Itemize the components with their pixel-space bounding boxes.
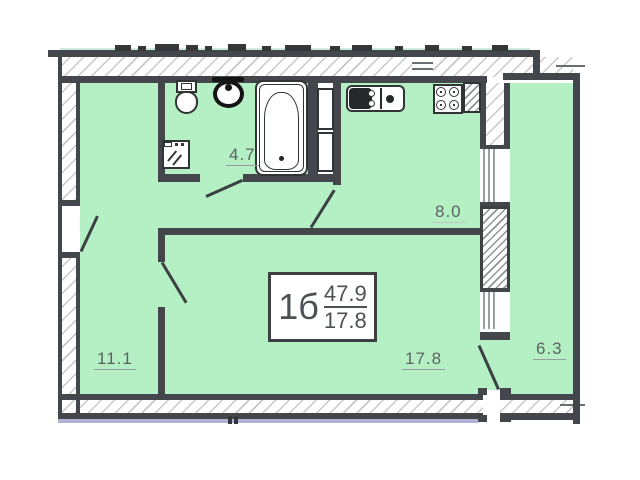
adjacent-unit-fragment	[115, 45, 131, 51]
unit-type-label: 1б	[278, 289, 319, 325]
window-glazing	[493, 149, 495, 202]
adjacent-unit-fragment	[205, 46, 212, 51]
adjacent-unit-fragment	[138, 46, 146, 51]
unit-total-area: 47.9	[324, 281, 367, 306]
living-room-area-label: 17.8	[402, 350, 445, 370]
wall-hatch-bottom-main	[62, 400, 483, 414]
wall-corridor-horizontal	[158, 228, 483, 235]
wall-hallway-living	[158, 307, 165, 394]
toilet-bowl	[175, 91, 198, 114]
wall-nub	[478, 415, 487, 422]
stove-burner-dot	[453, 91, 455, 93]
dimension-tick	[556, 65, 585, 67]
washing-machine-knob	[181, 143, 184, 146]
duct-box	[317, 88, 334, 130]
window-glazing	[493, 292, 495, 329]
wall-right-outer	[573, 73, 580, 424]
adjacent-unit-fragment	[155, 44, 179, 51]
unit-stamp: 1б 47.9 17.8	[268, 272, 377, 342]
hallway-area-label: 11.1	[94, 350, 136, 370]
wall-kitchen-left	[333, 76, 341, 185]
wall-nub	[500, 415, 511, 422]
adjacent-unit-fragment	[462, 46, 472, 51]
bathtub-drain-dot	[279, 156, 284, 161]
unit-area-fraction: 47.9 17.8	[324, 281, 367, 334]
duct-box	[317, 132, 334, 172]
adjacent-unit-fragment	[395, 46, 403, 51]
wall-hatch-top	[58, 57, 533, 77]
adjacent-unit-fragment	[186, 45, 198, 51]
washbasin-faucet-dot	[225, 84, 232, 91]
plinth-line	[58, 419, 478, 423]
wall-balcony-top	[503, 73, 578, 80]
adjacent-unit-fragment	[262, 46, 271, 51]
adjacent-unit-fragment	[285, 45, 311, 51]
adjacent-unit-fragment	[228, 44, 246, 51]
wall-bottom-inner-balcony	[500, 394, 576, 400]
stove-burner-dot	[453, 104, 455, 106]
top-wall-vent-gap	[412, 57, 433, 76]
wall-nub	[478, 388, 487, 395]
wall-left-outer-edge	[58, 57, 62, 419]
dimension-tick	[228, 416, 232, 424]
stove-burner-dot	[440, 104, 442, 106]
kitchen-sink-faucet-dot	[386, 95, 394, 103]
entrance-jamb	[58, 252, 80, 258]
window-pier	[480, 206, 510, 292]
adjacent-unit-fragment	[492, 45, 508, 51]
vent-gap-line	[412, 68, 433, 70]
stove-burner-dot	[440, 91, 442, 93]
window-glazing	[483, 149, 485, 202]
kitchen-sink-dot	[368, 90, 375, 97]
balcony-area-label: 6.3	[533, 340, 566, 360]
adjacent-unit-fragment	[330, 46, 340, 51]
dimension-tick	[234, 416, 238, 424]
floor-plan: 4.7 8.0 11.1 17.8 6.3 1б 47.9 17.8	[0, 0, 640, 480]
adjacent-unit-fragment	[425, 45, 439, 51]
wall-hallway-living	[158, 235, 165, 262]
wall-balcony-left-edge	[504, 83, 510, 148]
kitchen-area-label: 8.0	[432, 203, 465, 223]
wall-hatch-bottom-balcony	[500, 400, 573, 414]
vent-shaft-icon	[463, 82, 481, 113]
window-glazing	[488, 292, 490, 329]
wall-bathroom-bottom	[158, 174, 200, 182]
wall-left-inner-edge	[76, 77, 80, 200]
wall-kitchen-right-core	[486, 83, 504, 148]
window-glazing	[488, 149, 490, 202]
window-glazing	[483, 292, 485, 329]
entrance-jamb	[58, 200, 80, 206]
washing-machine-knob	[175, 143, 178, 146]
wall-nub	[500, 388, 511, 395]
vent-gap-line	[412, 62, 433, 64]
kitchen-sink-dot	[368, 100, 375, 107]
wall-left-inner-edge	[76, 258, 80, 415]
bathroom-area-label: 4.7	[226, 146, 259, 166]
wall-bottom-inner	[58, 394, 483, 400]
adjacent-unit-fragment	[352, 45, 372, 51]
window-sill	[480, 332, 510, 340]
wall-top-outer	[48, 50, 540, 57]
toilet-tank-inner	[181, 83, 192, 90]
washing-machine-drawer	[164, 142, 172, 147]
wall-bottom-outer-balcony	[500, 413, 580, 420]
unit-living-area: 17.8	[324, 306, 367, 333]
kitchen-sink-divider	[380, 88, 382, 109]
